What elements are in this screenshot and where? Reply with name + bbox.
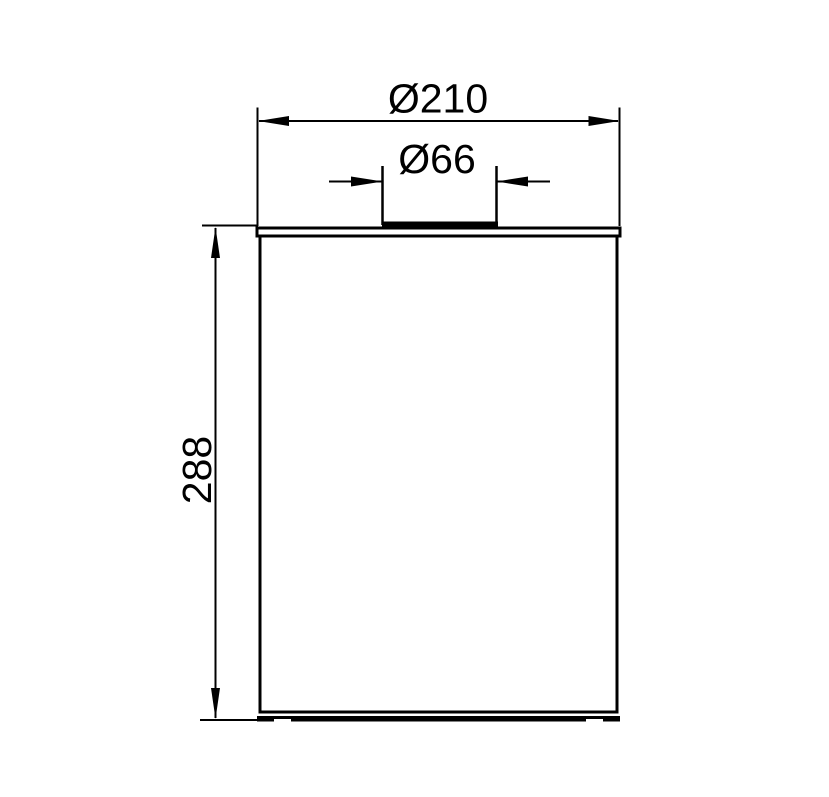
arrowhead-right-icon xyxy=(497,177,529,187)
dimension-height: 288 xyxy=(174,226,262,721)
container-body xyxy=(260,232,617,712)
technical-drawing-canvas: Ø210 Ø66 288 xyxy=(0,0,829,797)
height-label: 288 xyxy=(174,436,220,504)
arrowhead-down-icon xyxy=(211,688,220,719)
arrowhead-left-icon xyxy=(351,177,383,187)
arrowhead-up-icon xyxy=(211,227,220,258)
dimension-drawing: Ø210 Ø66 288 xyxy=(0,0,829,797)
container-outline xyxy=(257,225,620,723)
container-lid xyxy=(257,228,620,236)
base-notch-right xyxy=(586,719,603,722)
container-base xyxy=(257,716,620,722)
arrowhead-left-icon xyxy=(258,116,289,126)
outer-diameter-label: Ø210 xyxy=(388,76,488,122)
arrowhead-right-icon xyxy=(589,116,620,126)
dimension-boss-diameter: Ø66 xyxy=(329,136,550,225)
boss-diameter-label: Ø66 xyxy=(398,136,476,182)
base-notch-left xyxy=(274,719,291,722)
